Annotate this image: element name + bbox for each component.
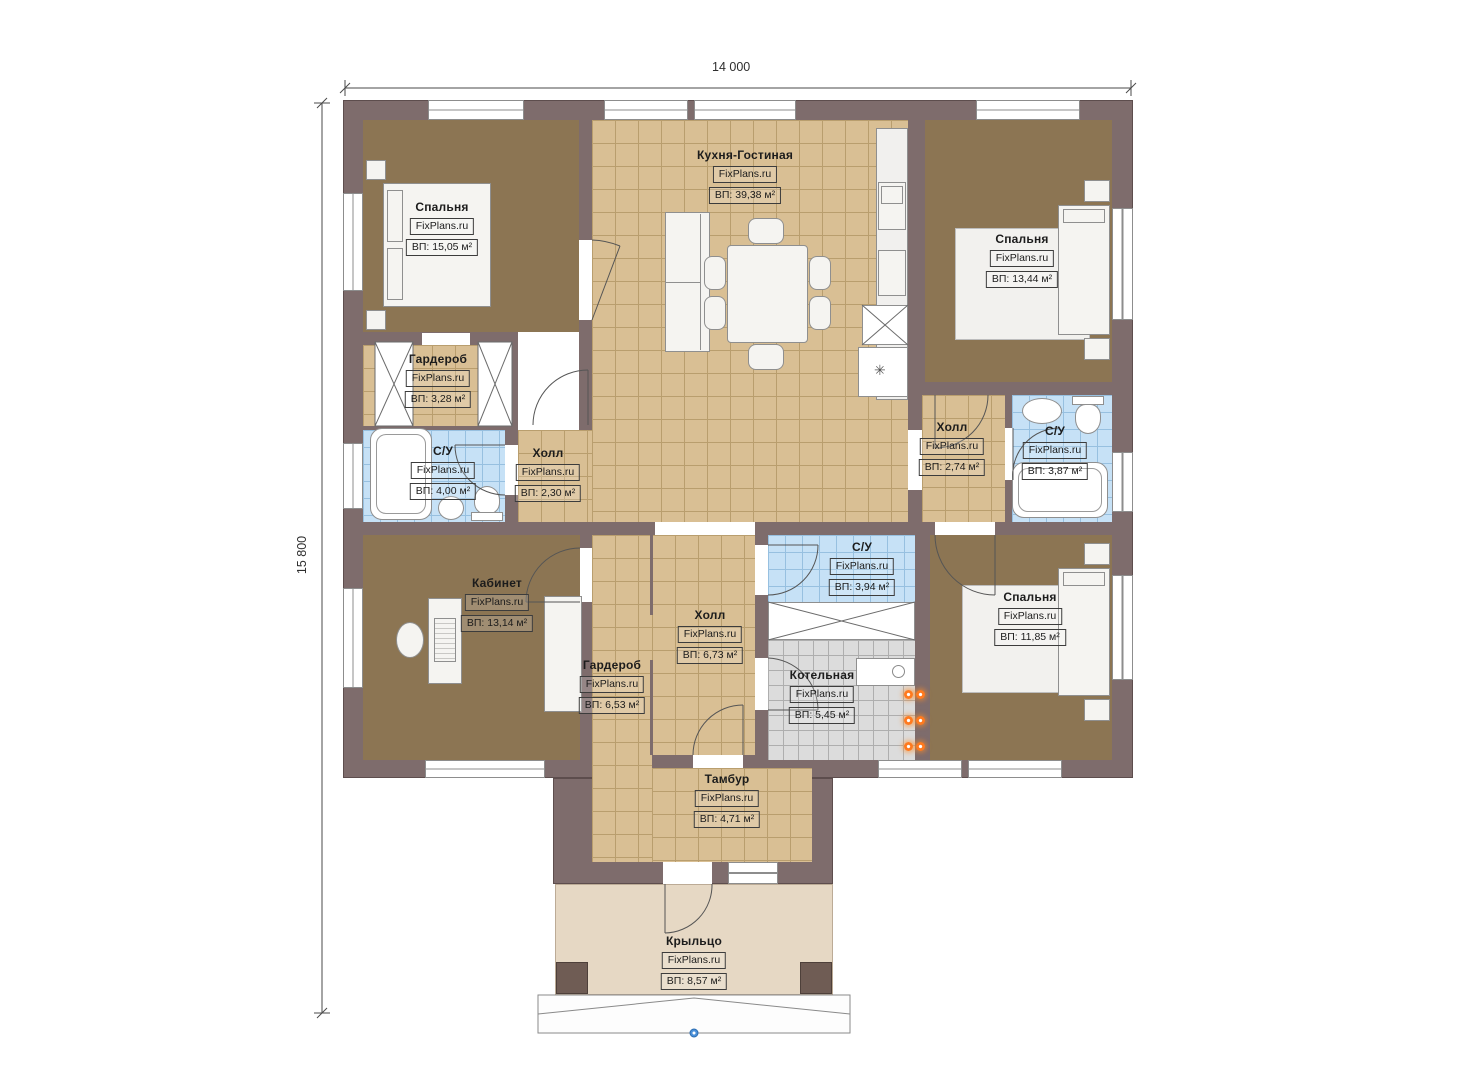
room-area: ВП: 4,71 м²: [694, 811, 760, 828]
window-right-bedroom-tr: [1112, 208, 1133, 320]
sofa-back-line: [700, 214, 701, 350]
window-top-bedroom-tl: [428, 100, 524, 120]
kitchen-cabinet-x: [862, 305, 908, 345]
nightstand: [1084, 338, 1110, 360]
pillow: [387, 190, 403, 242]
corridor-passage-opening: [655, 522, 755, 535]
brand-watermark: FixPlans.ru: [790, 686, 855, 703]
toilet-tank: [471, 512, 503, 521]
wardrobe-hall-thin-wall-a: [650, 535, 653, 615]
room-label-tambour: Тамбур FixPlans.ru ВП: 4,71 м²: [694, 772, 760, 828]
dimension-width-label: 14 000: [712, 60, 750, 74]
nightstand: [1084, 699, 1110, 721]
room-area: ВП: 6,53 м²: [579, 697, 645, 714]
dining-chair: [704, 296, 726, 330]
dining-chair: [748, 218, 784, 244]
heat-pipe-dot: [916, 716, 925, 725]
window-top-kitchen-2: [694, 100, 796, 120]
nightstand: [1084, 543, 1110, 565]
room-area: ВП: 15,05 м²: [406, 239, 478, 256]
room-label-boiler: Котельная FixPlans.ru ВП: 5,45 м²: [789, 668, 855, 724]
room-area: ВП: 13,14 м²: [461, 615, 533, 632]
room-label-porch: Крыльцо FixPlans.ru ВП: 8,57 м²: [661, 934, 727, 990]
porch-steps: [538, 995, 850, 1033]
brand-watermark: FixPlans.ru: [998, 608, 1063, 625]
room-label-wardrobe-tl: Гардероб FixPlans.ru ВП: 3,28 м²: [405, 352, 471, 408]
window-bottom-cabinet: [425, 760, 545, 778]
toilet-bath-tl: [474, 486, 500, 514]
room-label-bedroom-br: Спальня FixPlans.ru ВП: 11,85 м²: [994, 590, 1066, 646]
room-name: Спальня: [994, 590, 1066, 604]
heat-pipe-dot: [916, 742, 925, 751]
window-left-bath-tl: [343, 443, 363, 509]
room-label-bath-394: С/У FixPlans.ru ВП: 3,94 м²: [829, 540, 895, 596]
room-name: Холл: [515, 446, 581, 460]
sofa-cabinet: [544, 596, 582, 712]
sofa-split-line: [666, 282, 700, 283]
brand-watermark: FixPlans.ru: [678, 626, 743, 643]
pillow: [387, 248, 403, 300]
dimension-height-line: [314, 98, 330, 1018]
brand-watermark: FixPlans.ru: [1023, 442, 1088, 459]
brand-watermark: FixPlans.ru: [406, 370, 471, 387]
window-bottom-bedroom-br: [968, 760, 1062, 778]
floor-plan-canvas: 14 000 15 800: [0, 0, 1474, 1080]
room-name: Крыльцо: [661, 934, 727, 948]
brand-watermark: FixPlans.ru: [830, 558, 895, 575]
dimension-width-line: [340, 80, 1136, 96]
window-left-cabinet: [343, 588, 363, 688]
level-marker-center: [693, 1032, 696, 1035]
porch-pillar-right: [800, 962, 832, 994]
room-name: Кухня-Гостиная: [697, 148, 793, 162]
monitor-cabinet: [434, 618, 456, 662]
window-top-kitchen-1: [604, 100, 688, 120]
room-label-bath-tl: С/У FixPlans.ru ВП: 4,00 м²: [410, 444, 476, 500]
entrance-door-opening: [663, 862, 712, 884]
room-label-wardrobe-653: Гардероб FixPlans.ru ВП: 6,53 м²: [579, 658, 645, 714]
wardrobe-hall-thin-wall-b: [650, 660, 653, 755]
heat-pipe-dot: [904, 742, 913, 751]
dining-chair: [809, 256, 831, 290]
window-left-bedroom-tl: [343, 193, 363, 291]
cabinet-door-opening: [580, 548, 592, 602]
closet-unit-wide: [768, 602, 915, 640]
pillow: [1063, 209, 1105, 223]
room-name: Кабинет: [461, 576, 533, 590]
bed-bedroom-tr: [1058, 205, 1110, 335]
brand-watermark: FixPlans.ru: [580, 676, 645, 693]
tambour-door-opening: [693, 755, 743, 768]
brand-watermark: FixPlans.ru: [990, 250, 1055, 267]
room-name: С/У: [410, 444, 476, 458]
window-vestibule: [728, 862, 778, 884]
window-top-bedroom-tr: [976, 100, 1080, 120]
room-area: ВП: 4,00 м²: [410, 483, 476, 500]
dining-table: [727, 245, 808, 343]
nightstand: [366, 310, 386, 330]
boiler-unit-circle: [892, 665, 905, 678]
heat-pipe-dot: [916, 690, 925, 699]
room-label-hall-274: Холл FixPlans.ru ВП: 2,74 м²: [919, 420, 985, 476]
bed-bedroom-br: [1058, 568, 1110, 696]
room-area: ВП: 3,28 м²: [405, 391, 471, 408]
room-name: Котельная: [789, 668, 855, 682]
room-label-bedroom-tr: Спальня FixPlans.ru ВП: 13,44 м²: [986, 232, 1058, 288]
brand-watermark: FixPlans.ru: [411, 462, 476, 479]
boiler-counter: [856, 658, 915, 686]
brand-watermark: FixPlans.ru: [465, 594, 530, 611]
dining-chair: [809, 296, 831, 330]
bedroom-tl-door-opening: [579, 240, 592, 320]
room-name: Гардероб: [579, 658, 645, 672]
window-right-bath-tr: [1112, 452, 1133, 512]
dining-chair: [748, 344, 784, 370]
office-chair: [396, 622, 424, 658]
room-area: ВП: 8,57 м²: [661, 973, 727, 990]
sink-bath-tr: [1022, 398, 1062, 424]
room-area: ВП: 3,94 м²: [829, 579, 895, 596]
porch-pillar-left: [556, 962, 588, 994]
dimension-height-label: 15 800: [295, 536, 309, 574]
nightstand: [1084, 180, 1110, 202]
sink-symbol-icon: ✳: [874, 362, 886, 379]
room-label-bedroom-tl: Спальня FixPlans.ru ВП: 15,05 м²: [406, 200, 478, 256]
room-label-hall-tl: Холл FixPlans.ru ВП: 2,30 м²: [515, 446, 581, 502]
room-label-bath-tr: С/У FixPlans.ru ВП: 3,87 м²: [1022, 424, 1088, 480]
nightstand: [366, 160, 386, 180]
brand-watermark: FixPlans.ru: [516, 464, 581, 481]
dining-chair: [704, 256, 726, 290]
window-bottom-boiler: [878, 760, 962, 778]
room-name: Тамбур: [694, 772, 760, 786]
wardrobe-tl-door-opening: [422, 333, 470, 345]
room-name: Гардероб: [405, 352, 471, 366]
bedroom-br-door-opening: [935, 522, 995, 535]
brand-watermark: FixPlans.ru: [713, 166, 778, 183]
room-label-kitchen: Кухня-Гостиная FixPlans.ru ВП: 39,38 м²: [697, 148, 793, 204]
room-area: ВП: 6,73 м²: [677, 647, 743, 664]
bath-394-door-opening: [755, 545, 768, 595]
room-name: С/У: [829, 540, 895, 554]
brand-watermark: FixPlans.ru: [410, 218, 475, 235]
heat-pipe-dot: [904, 690, 913, 699]
window-right-bedroom-br: [1112, 575, 1133, 680]
room-area: ВП: 2,30 м²: [515, 485, 581, 502]
brand-watermark: FixPlans.ru: [695, 790, 760, 807]
brand-watermark: FixPlans.ru: [920, 438, 985, 455]
heat-pipe-dot: [904, 716, 913, 725]
level-marker-icon: [690, 1029, 698, 1037]
hall-opening-tl: [518, 332, 579, 430]
room-area: ВП: 2,74 м²: [919, 459, 985, 476]
room-name: Спальня: [406, 200, 478, 214]
room-name: С/У: [1022, 424, 1088, 438]
room-area: ВП: 3,87 м²: [1022, 463, 1088, 480]
room-area: ВП: 39,38 м²: [709, 187, 781, 204]
room-label-hall-673: Холл FixPlans.ru ВП: 6,73 м²: [677, 608, 743, 664]
room-name: Холл: [919, 420, 985, 434]
room-area: ВП: 13,44 м²: [986, 271, 1058, 288]
room-name: Холл: [677, 608, 743, 622]
room-area: ВП: 5,45 м²: [789, 707, 855, 724]
boiler-door-opening: [755, 658, 768, 710]
pillow: [1063, 572, 1105, 586]
stove: [878, 250, 906, 296]
room-area: ВП: 11,85 м²: [994, 629, 1066, 646]
fridge-inner-line: [881, 186, 903, 204]
room-name: Спальня: [986, 232, 1058, 246]
room-label-cabinet: Кабинет FixPlans.ru ВП: 13,14 м²: [461, 576, 533, 632]
brand-watermark: FixPlans.ru: [662, 952, 727, 969]
